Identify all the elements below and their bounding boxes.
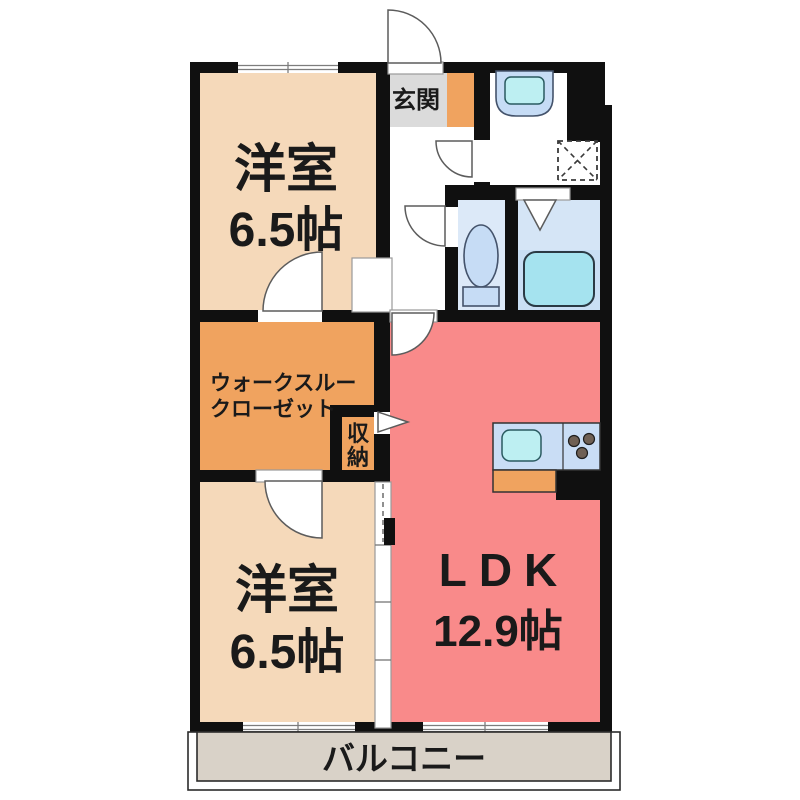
closet-label-line2: クローゼット — [210, 397, 336, 421]
bedroom-bottom-name: 洋室 — [235, 562, 339, 620]
washing-machine-space-icon — [558, 141, 597, 180]
room-ldk — [390, 322, 600, 722]
kitchen-sink-icon — [502, 430, 541, 461]
bedroom-top-name: 洋室 — [234, 141, 338, 199]
closet-label-line1: ウォークスルー — [210, 372, 356, 395]
balcony-label: バルコニー — [322, 740, 486, 777]
window-bedroom-top — [238, 62, 338, 73]
bedroom-top-size: 6.5帖 — [229, 204, 344, 257]
shoe-cabinet — [447, 73, 474, 127]
entrance-door-leaf — [388, 62, 443, 74]
ldk-size: 12.9帖 — [433, 607, 563, 656]
bedroom-top-doorway — [352, 258, 392, 312]
bathtub-icon — [524, 252, 594, 306]
bedroom-bottom-door-leaf — [256, 470, 322, 482]
floor-plan: 玄関 洋室 6.5帖 ウォークスルー クローゼット 収 納 洋室 6.5帖 LD… — [0, 0, 800, 800]
washbasin-bowl-icon — [505, 77, 544, 104]
entrance-label: 玄関 — [392, 86, 440, 114]
toilet-icon — [463, 225, 499, 306]
kitchen-counter-front — [493, 470, 556, 492]
bedroom-bottom-size: 6.5帖 — [230, 626, 345, 679]
storage-label-char1: 収 — [347, 421, 370, 446]
entrance-door-arc — [388, 10, 441, 63]
floor-plan-canvas: 玄関 洋室 6.5帖 ウォークスルー クローゼット 収 納 洋室 6.5帖 LD… — [0, 0, 800, 800]
ldk-name: LDK — [439, 544, 570, 596]
storage-label-char2: 納 — [347, 445, 369, 470]
